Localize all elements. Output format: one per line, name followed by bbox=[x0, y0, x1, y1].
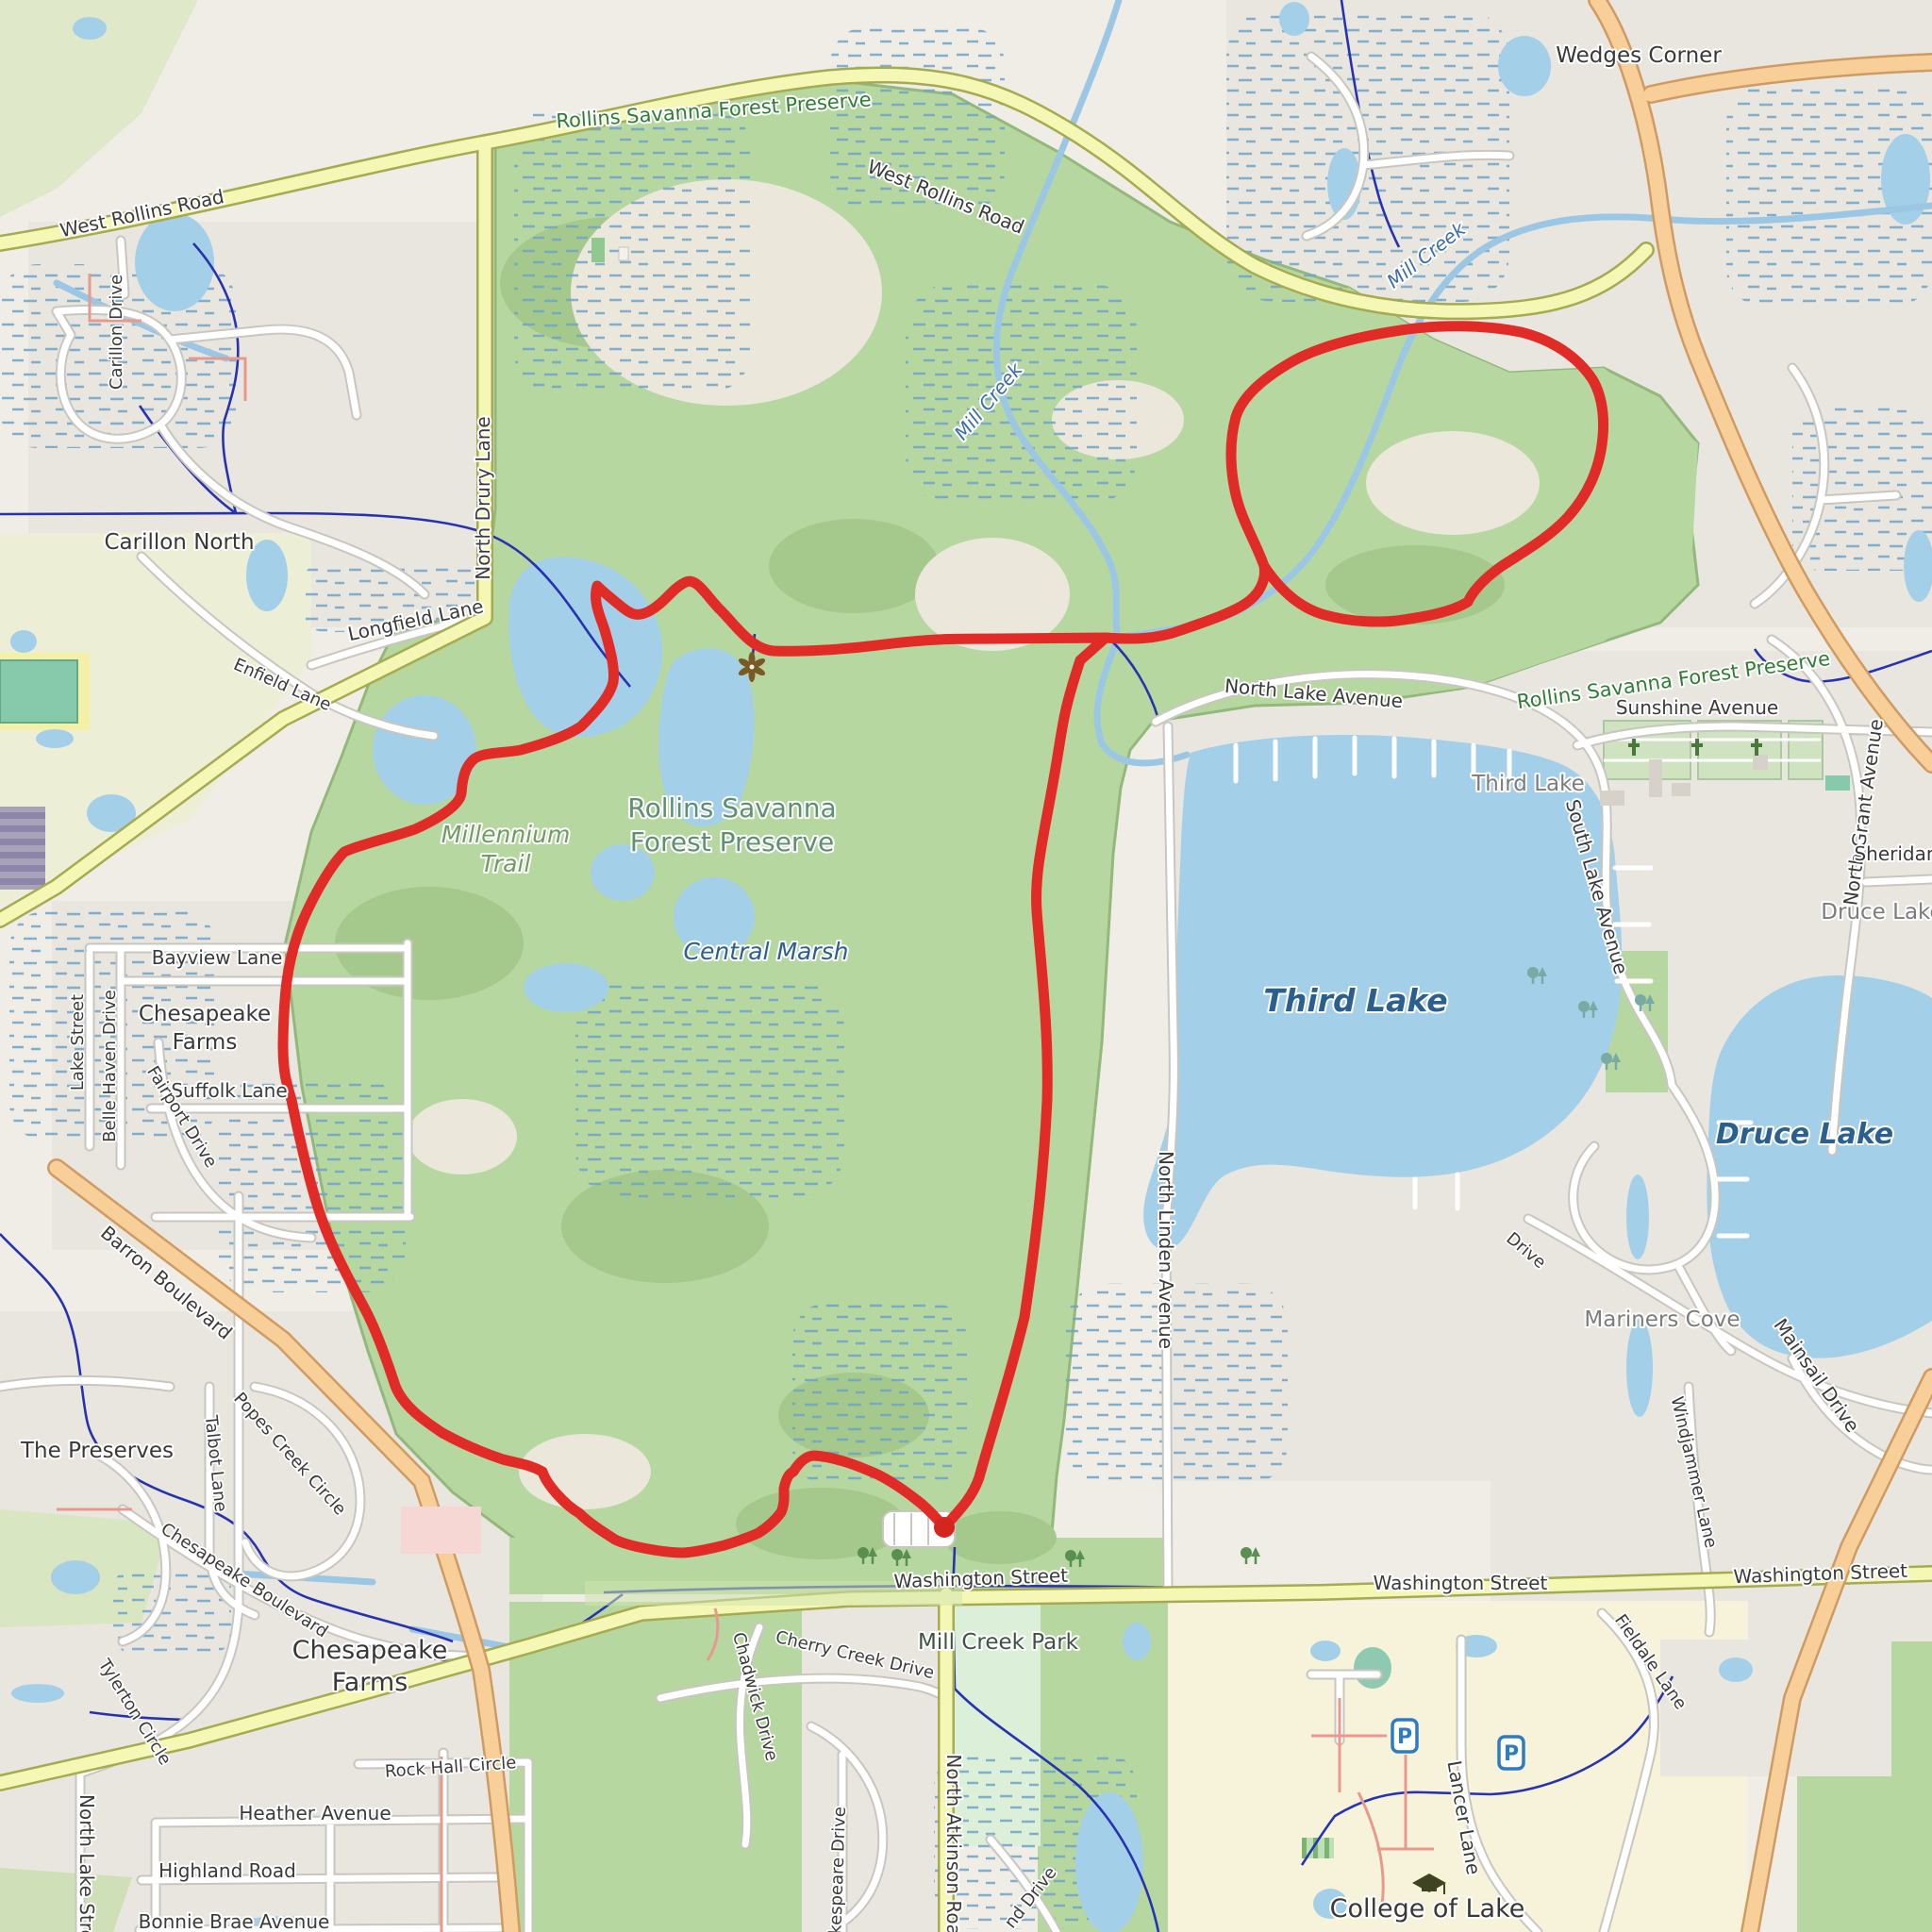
map-label: North Lake Street bbox=[75, 1794, 98, 1932]
basemap-svg: PP Wedges CornerWest Rollins RoadRollins… bbox=[0, 0, 1932, 1932]
map-label: Druce Lake bbox=[1716, 1118, 1893, 1151]
map-label: Belle Haven Drive bbox=[100, 990, 120, 1142]
sports-pitch bbox=[0, 653, 90, 730]
map-label: Lake Street bbox=[68, 994, 88, 1091]
svg-text:P: P bbox=[1504, 1742, 1519, 1766]
parking-icon: P bbox=[1499, 1737, 1524, 1769]
map-label: Mariners Cove bbox=[1584, 1307, 1740, 1332]
map-label: The Preserves bbox=[20, 1439, 174, 1463]
map-label: Bayview Lane bbox=[152, 946, 283, 969]
map-label: Wedges Corner bbox=[1556, 43, 1722, 68]
map-label: Central Marsh bbox=[683, 938, 848, 965]
map-label: Third Lake bbox=[1263, 982, 1447, 1019]
map-label: North Drury Lane bbox=[472, 416, 494, 579]
map-label: Suffolk Lane bbox=[171, 1079, 287, 1102]
map-label: North Atkinson Road bbox=[942, 1754, 965, 1932]
parking-icon: P bbox=[1392, 1720, 1417, 1752]
map-label: Sunshine Avenue bbox=[1616, 696, 1778, 719]
map-label: Bonnie Brae Avenue bbox=[139, 1910, 330, 1932]
map-label: Highland Road bbox=[158, 1859, 296, 1882]
map-label: Carillon North bbox=[104, 530, 254, 555]
striped-area bbox=[0, 807, 45, 890]
druce-lake bbox=[1707, 975, 1932, 1358]
map-label: College of Lake bbox=[1330, 1894, 1525, 1924]
svg-text:P: P bbox=[1397, 1725, 1412, 1749]
map-label: North Linden Avenue bbox=[1155, 1151, 1177, 1349]
map-label: Washington Street bbox=[1374, 1572, 1548, 1594]
map-label: Third Lake bbox=[1471, 772, 1585, 796]
route-start-marker bbox=[934, 1517, 955, 1538]
map-label: Heather Avenue bbox=[239, 1802, 391, 1824]
map-label: Druce Lake bbox=[1821, 900, 1932, 924]
map-label: Mill Creek Park bbox=[918, 1630, 1079, 1655]
map-canvas[interactable]: PP Wedges CornerWest Rollins RoadRollins… bbox=[0, 0, 1932, 1932]
map-label: Carillon Drive bbox=[107, 275, 126, 390]
map-label: Sheridan bbox=[1854, 842, 1932, 865]
